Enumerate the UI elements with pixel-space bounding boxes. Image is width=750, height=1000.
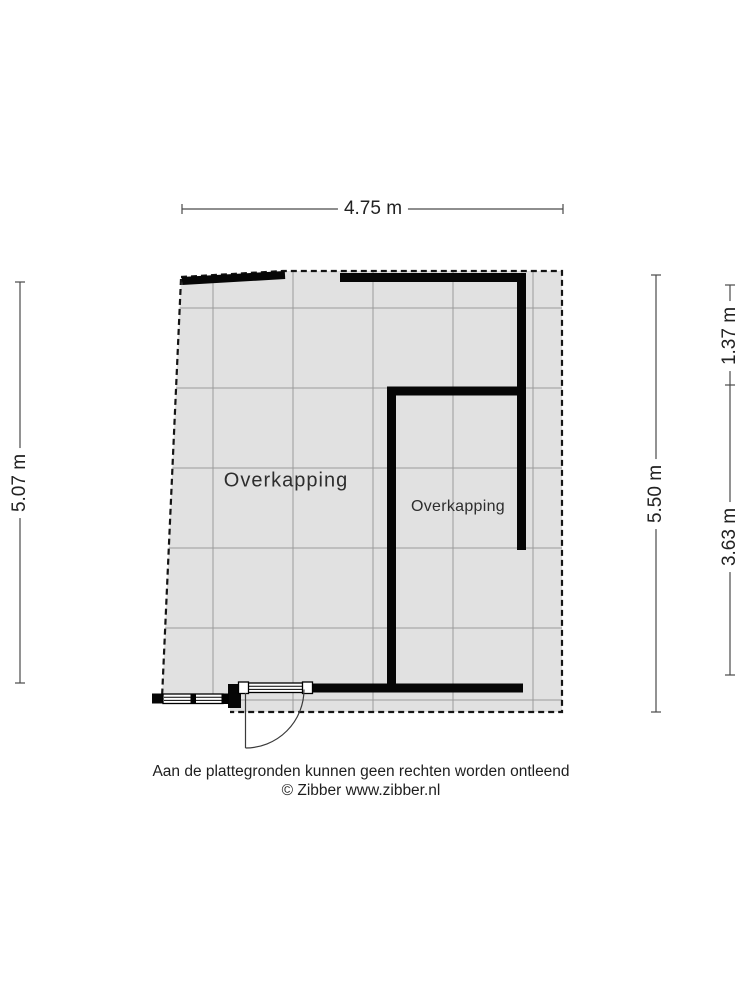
wall-stub-left xyxy=(152,694,163,704)
dimension-right-total: 5.50 m xyxy=(645,459,667,529)
dimension-right-upper: 1.37 m xyxy=(719,301,741,371)
footer-copyright: © Zibber www.zibber.nl xyxy=(0,781,722,800)
floorplan-page: 4.75 m 5.07 m 5.50 m 1.37 m 3.63 m Overk… xyxy=(0,0,750,1000)
footer: Aan de plattegronden kunnen geen rechten… xyxy=(0,762,722,800)
floorplan-canvas xyxy=(0,0,750,1000)
room-label-inner: Overkapping xyxy=(411,498,505,516)
window-left xyxy=(163,694,229,705)
footer-disclaimer: Aan de plattegronden kunnen geen rechten… xyxy=(0,762,722,781)
dimension-top: 4.75 m xyxy=(338,198,408,220)
door xyxy=(239,682,313,748)
room-label-main: Overkapping xyxy=(224,470,348,493)
dimension-left: 5.07 m xyxy=(9,448,31,518)
dimension-right-lower: 3.63 m xyxy=(719,502,741,572)
floor-area xyxy=(162,271,562,712)
